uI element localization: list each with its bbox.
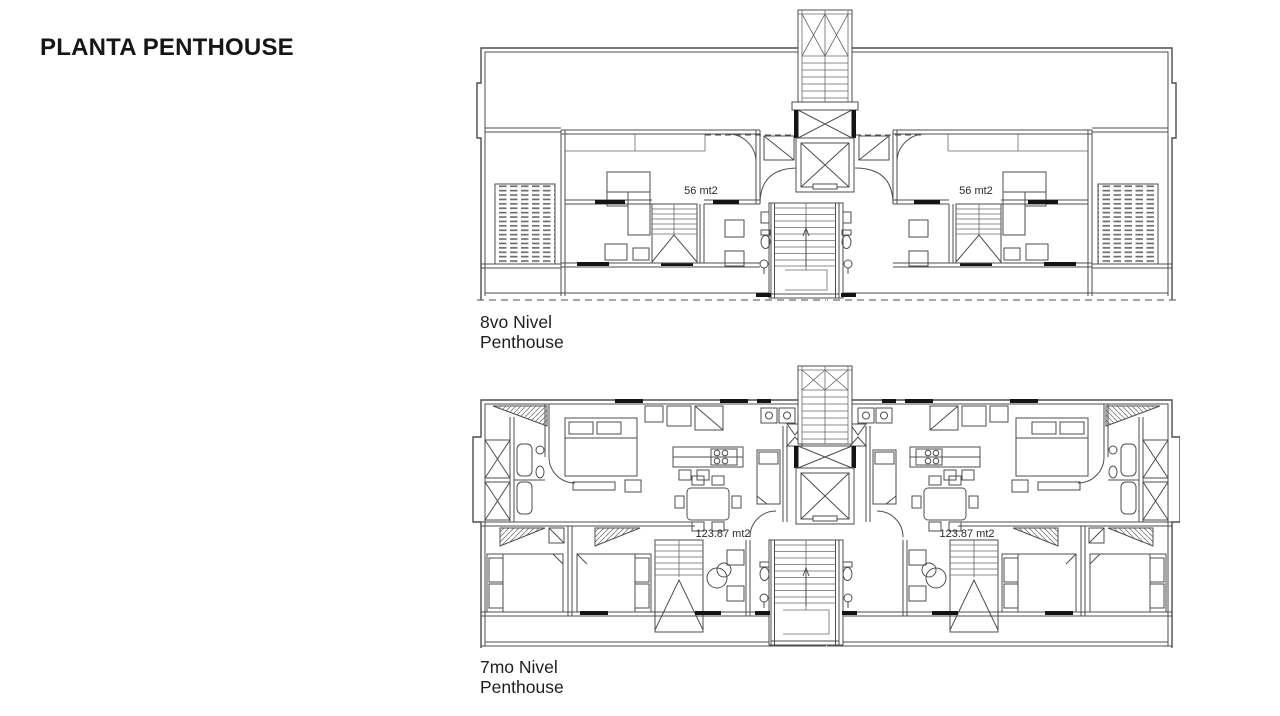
area-label-left-8: 56 mt2 bbox=[684, 185, 718, 197]
stair-tower bbox=[798, 366, 852, 444]
caption-level-8: 8vo Nivel Penthouse bbox=[480, 312, 564, 352]
elevator-vestibule bbox=[794, 446, 856, 468]
caption-level-8-name: 8vo Nivel bbox=[480, 312, 564, 332]
area-label-right-7: 123.87 mt2 bbox=[939, 528, 994, 540]
central-staircase bbox=[769, 203, 843, 298]
area-label-right-8: 56 mt2 bbox=[959, 185, 993, 197]
floor-plan-level-7: 123.87 mt2 123.87 mt2 bbox=[465, 362, 1180, 662]
caption-level-7-sub: Penthouse bbox=[480, 677, 564, 697]
stair-landing bbox=[792, 102, 858, 110]
page-title: PLANTA PENTHOUSE bbox=[40, 34, 294, 62]
central-staircase bbox=[769, 540, 843, 645]
caption-level-7: 7mo Nivel Penthouse bbox=[480, 657, 564, 697]
floor-plan-level-8: 56 mt2 56 mt2 bbox=[465, 8, 1180, 313]
elevator-shaft bbox=[796, 468, 854, 524]
area-label-left-7: 123.87 mt2 bbox=[695, 528, 750, 540]
penthouse-floor-plans-page: PLANTA PENTHOUSE bbox=[0, 0, 1280, 716]
elevator-vestibule bbox=[794, 110, 856, 138]
stair-tower bbox=[798, 10, 852, 102]
caption-level-7-name: 7mo Nivel bbox=[480, 657, 564, 677]
elevator-shaft bbox=[796, 138, 854, 192]
caption-level-8-sub: Penthouse bbox=[480, 332, 564, 352]
